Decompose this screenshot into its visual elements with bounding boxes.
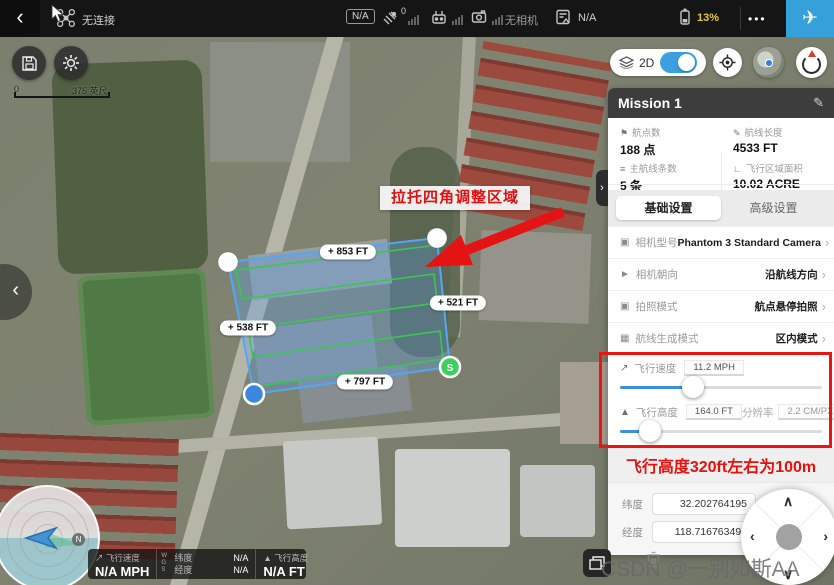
map-building xyxy=(395,449,510,547)
chevron-right-icon: › xyxy=(822,299,826,314)
remote-controller-icon xyxy=(430,8,448,26)
compass-reset-button[interactable] xyxy=(796,47,827,78)
toggle-knob xyxy=(678,54,695,71)
map-settings-button[interactable] xyxy=(54,46,88,80)
setting-value: 沿航线方向 xyxy=(765,267,818,282)
telemetry-speed: ↗ 飞行速度 N/A MPH xyxy=(88,549,156,579)
gps-signal-bars xyxy=(408,15,419,25)
tab-advanced-settings[interactable]: 高级设置 xyxy=(721,196,826,220)
mouse-cursor xyxy=(51,4,64,23)
battery-percent: 13% xyxy=(697,12,719,24)
stat-route-length: ✎航线长度 4533 FT xyxy=(721,122,834,158)
map-texture xyxy=(77,268,215,427)
edit-mission-button[interactable]: ✎ xyxy=(813,95,824,111)
speed-slider-row: ↗ 飞行速度 11.2 MPH xyxy=(608,358,834,378)
dpad-right-button[interactable]: › xyxy=(823,528,828,544)
dpad-up-button[interactable]: ∧ xyxy=(783,493,793,510)
speed-slider-label: 飞行速度 xyxy=(634,361,676,376)
rc-signal-bars xyxy=(452,15,463,25)
map-building xyxy=(283,437,382,530)
chevron-right-icon: › xyxy=(822,267,826,282)
more-menu-button[interactable]: ••• xyxy=(748,12,767,26)
divider xyxy=(608,184,834,185)
edge-distance-label: + 521 FT xyxy=(430,296,486,311)
map-mode-label: 2D xyxy=(639,56,654,70)
latitude-input[interactable]: 32.202764195 xyxy=(652,493,756,515)
setting-value: 区内模式 xyxy=(776,331,818,346)
speed-slider-thumb[interactable] xyxy=(682,376,704,398)
route-mode-icon: ▦ xyxy=(620,333,629,344)
setting-row-camera-heading[interactable]: ► 相机朝向 沿航线方向 › xyxy=(608,258,834,290)
speed-slider[interactable] xyxy=(620,386,822,389)
latitude-label: 纬度 xyxy=(622,497,652,512)
edge-distance-label: + 797 FT xyxy=(337,375,393,390)
takeoff-button[interactable]: ✈ xyxy=(786,0,834,37)
setting-value: Phantom 3 Standard Camera xyxy=(677,237,821,249)
mission-stats: ⚑航点数 188 点 ✎航线长度 4533 FT ≡主航线条数 5 条 ∟飞行区… xyxy=(608,118,834,190)
mission-header: Mission 1 ✎ xyxy=(608,88,834,118)
mode-toggle[interactable] xyxy=(660,52,697,73)
checklist-value: N/A xyxy=(578,12,596,24)
divider xyxy=(740,7,741,30)
telemetry-bar: ↗ 飞行速度 N/A MPH WGS 纬度N/A 经度N/A ▲ 飞行高度 N/… xyxy=(88,549,306,579)
ruler-icon: ✎ xyxy=(733,128,741,138)
speed-value: 11.2 MPH xyxy=(684,360,744,376)
chevron-right-icon: › xyxy=(600,182,604,194)
map-mode-pill[interactable]: 2D xyxy=(610,49,706,76)
setting-row-route-mode[interactable]: ▦ 航线生成模式 区内模式 › xyxy=(608,322,834,354)
stat-main-lines: ≡主航线条数 5 条 xyxy=(608,158,721,194)
setting-label: 相机型号 xyxy=(635,235,677,250)
setting-row-camera-model[interactable]: ▣ 相机型号 Phantom 3 Standard Camera › xyxy=(608,226,834,258)
camera-icon: ▣ xyxy=(620,237,629,248)
setting-label: 拍照模式 xyxy=(635,299,677,314)
satellite-icon xyxy=(382,10,398,26)
altitude-value: 164.0 FT xyxy=(686,404,742,420)
camera-icon xyxy=(470,8,488,26)
minimap-location-dot xyxy=(765,59,773,67)
altitude-slider-label: 飞行高度 xyxy=(636,405,678,420)
dpad-left-button[interactable]: ‹ xyxy=(750,528,755,544)
save-icon xyxy=(21,55,38,72)
altitude-slider-row: ▲ 飞行高度 164.0 FT 分辨率 2.2 CM/PX xyxy=(608,402,834,422)
telemetry-coords: WGS 纬度N/A 经度N/A xyxy=(156,549,255,579)
north-pointer-icon xyxy=(808,50,816,57)
gear-icon xyxy=(62,54,80,72)
speed-icon: ↗ xyxy=(95,553,104,563)
watermark: CSDN @一别如斯AA xyxy=(601,553,800,583)
status-bar: ‹ 无连接 N/A 0 无相机 xyxy=(0,0,834,37)
compass-ring-icon xyxy=(802,55,821,74)
resolution-value: 2.2 CM/PX xyxy=(778,404,834,420)
mission-title: Mission 1 xyxy=(618,95,682,111)
altitude-icon: ▲ xyxy=(263,553,271,563)
map-building xyxy=(520,465,595,537)
waypoint-icon: ⚑ xyxy=(620,128,628,138)
airplane-icon: ✈ xyxy=(802,8,818,29)
connection-status: 无连接 xyxy=(82,12,115,28)
flight-mode-badge: N/A xyxy=(346,9,375,24)
chevron-left-icon: ‹ xyxy=(12,279,19,302)
speed-icon: ↗ xyxy=(620,363,628,374)
telemetry-altitude: ▲ 飞行高度 N/A FT xyxy=(255,549,315,579)
mission-panel: › Mission 1 ✎ ⚑航点数 188 点 ✎航线长度 4533 FT ≡… xyxy=(608,88,834,554)
locate-button[interactable] xyxy=(713,48,742,77)
lines-icon: ≡ xyxy=(620,164,625,174)
chevron-right-icon: › xyxy=(822,331,826,346)
altitude-slider[interactable] xyxy=(620,430,822,433)
dpad-center-button[interactable] xyxy=(776,524,802,550)
minimap-button[interactable] xyxy=(753,47,784,78)
app-screen: 0 375 英尺 ‹ S + 853 FT + 521 FT + 538 FT … xyxy=(0,0,834,585)
wgs-label: WGS xyxy=(161,553,167,574)
area-icon: ∟ xyxy=(733,164,742,174)
aircraft-arrow-icon xyxy=(22,523,62,553)
save-mission-button[interactable] xyxy=(12,46,46,80)
camera-status: 无相机 xyxy=(505,12,538,28)
panel-collapse-tab[interactable]: › xyxy=(596,170,608,206)
setting-label: 相机朝向 xyxy=(636,267,678,282)
gps-count: 0 xyxy=(401,6,406,16)
altitude-annotation: 飞行高度320ft左右为100m xyxy=(608,448,834,482)
settings-tabs: 基础设置 高级设置 xyxy=(608,190,834,226)
heading-icon: ► xyxy=(620,269,630,280)
photo-mode-icon: ▣ xyxy=(620,301,629,312)
setting-label: 航线生成模式 xyxy=(635,331,698,346)
checklist-icon xyxy=(554,8,572,26)
setting-value: 航点悬停拍照 xyxy=(755,299,818,314)
back-button[interactable]: ‹ xyxy=(0,0,40,37)
layers-icon xyxy=(619,56,634,69)
camera-signal-bars xyxy=(492,15,503,25)
chevron-right-icon: › xyxy=(825,235,829,250)
north-badge: N xyxy=(72,533,85,546)
stat-area: ∟飞行区域面积 10.02 ACRE xyxy=(721,158,834,194)
battery-icon xyxy=(678,8,694,26)
edge-distance-label: + 538 FT xyxy=(220,321,276,336)
stat-waypoints: ⚑航点数 188 点 xyxy=(608,122,721,158)
tab-basic-settings[interactable]: 基础设置 xyxy=(616,196,721,220)
resolution-label: 分辨率 xyxy=(742,405,774,420)
altitude-icon: ▲ xyxy=(620,407,630,418)
crosshair-icon xyxy=(719,54,736,71)
annotation-arrow xyxy=(410,200,580,280)
map-scale-bar xyxy=(14,96,110,98)
setting-row-photo-mode[interactable]: ▣ 拍照模式 航点悬停拍照 › xyxy=(608,290,834,322)
longitude-label: 经度 xyxy=(622,525,652,540)
edge-distance-label: + 853 FT xyxy=(320,245,376,260)
